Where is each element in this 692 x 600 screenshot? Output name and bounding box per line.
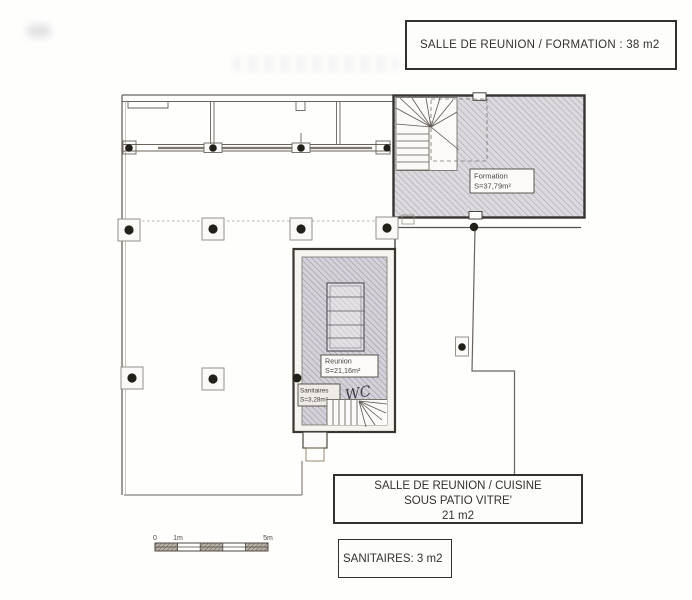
note-cuisine-area: SALLE DE REUNION / CUISINE SOUS PATIO VI… [333, 474, 583, 524]
note-formation-text: SALLE DE REUNION / FORMATION : 38 m2 [420, 39, 659, 51]
formation-room-area: S=37,79m² [474, 182, 511, 191]
central-room: Reunion S=21,16m² Sanitaires S=3,28m² WC [293, 249, 395, 461]
column [376, 217, 398, 239]
sanitaires-room-name: Sanitaires [300, 388, 328, 395]
wall-partitions [211, 102, 341, 145]
scale-bar: 0 1m 5m [153, 535, 273, 551]
note-sanitaires-area: SANITAIRES: 3 m2 [338, 539, 452, 578]
conference-table [327, 283, 364, 351]
scale-label-one-metre: 1m [173, 535, 183, 542]
room-door-protrusion [303, 432, 327, 461]
note-sanitaires-text: SANITAIRES: 3 m2 [343, 553, 442, 565]
column-dot-on-wall [293, 374, 302, 383]
column [118, 219, 140, 241]
column [456, 337, 469, 356]
note-cuisine-line3: 21 m2 [335, 509, 581, 524]
reunion-room-name: Reunion [325, 357, 352, 366]
formation-room-name: Formation [474, 172, 508, 181]
scanned-floor-plan-page: Formation S=37,79m² [0, 0, 692, 600]
column [290, 218, 312, 240]
note-cuisine-line2: SOUS PATIO VITRE' [335, 494, 581, 509]
column [121, 367, 143, 389]
site-boundary-right [390, 215, 581, 476]
reunion-room-label: Reunion S=21,16m² [321, 355, 378, 377]
interior-wall-top [123, 133, 391, 154]
column-dot [470, 223, 478, 231]
scale-label-zero: 0 [153, 535, 157, 542]
central-room-stairs [327, 399, 387, 427]
note-cuisine-line1: SALLE DE REUNION / CUISINE [335, 479, 581, 494]
sanitaires-room-area: S=3,28m² [300, 397, 328, 404]
column [202, 368, 224, 390]
formation-room-label: Formation S=37,79m² [470, 169, 534, 193]
formation-room: Formation S=37,79m² [394, 93, 585, 219]
reunion-room-area: S=21,16m² [325, 366, 361, 375]
note-formation-area: SALLE DE REUNION / FORMATION : 38 m2 [405, 20, 677, 70]
scale-label-five-metres: 5m [263, 535, 273, 542]
formation-bottom-notch [469, 212, 482, 220]
column [202, 218, 224, 240]
